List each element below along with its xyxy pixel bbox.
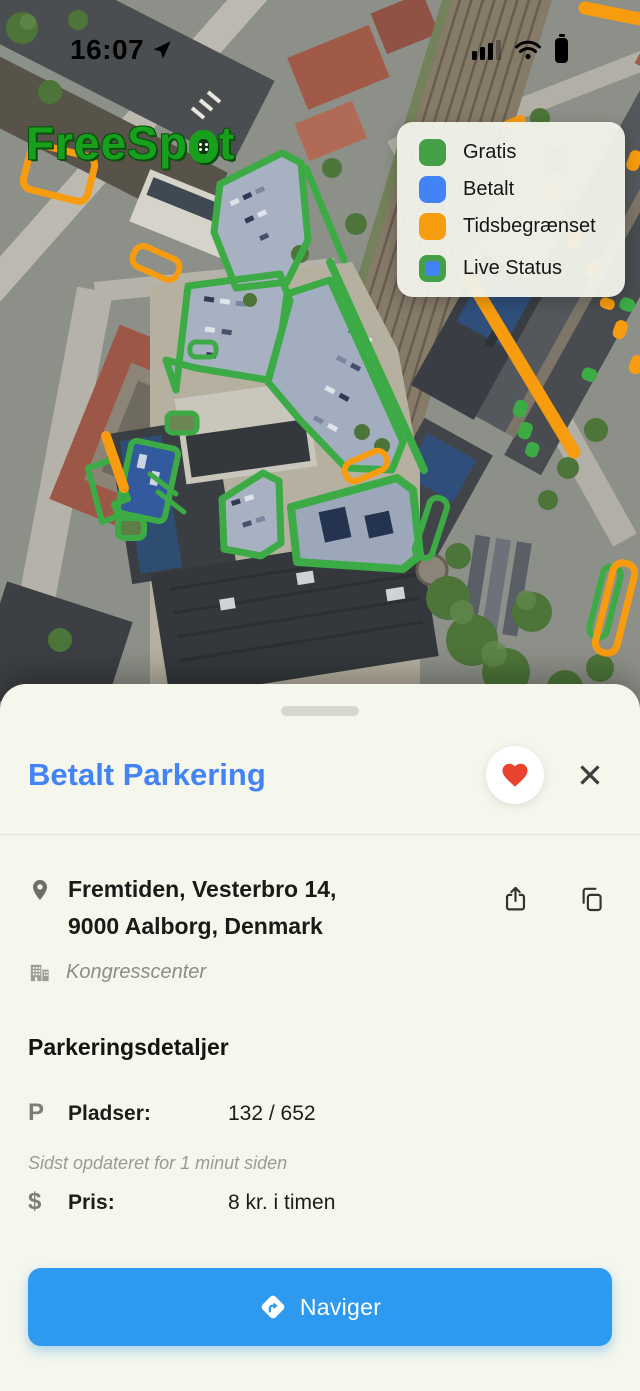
close-icon: ✕ <box>576 757 604 794</box>
price-label: Pris: <box>68 1191 228 1215</box>
heart-icon <box>499 760 531 790</box>
address-section: Fremtiden, Vesterbro 14, 9000 Aalborg, D… <box>0 835 640 984</box>
price-row: $ Pris: 8 kr. i timen <box>28 1188 612 1216</box>
free-swatch-icon <box>419 139 446 166</box>
app-logo: FreeSpt <box>26 116 235 170</box>
logo-text-prefix: FreeSp <box>26 116 188 170</box>
address-line1: Fremtiden, Vesterbro 14, <box>68 871 501 908</box>
navigate-button[interactable]: Naviger <box>28 1268 612 1346</box>
legend-label: Live Status <box>463 257 562 280</box>
sheet-header: Betalt Parkering ✕ <box>0 716 640 804</box>
address-line2: 9000 Aalborg, Denmark <box>68 908 501 945</box>
navigate-label: Naviger <box>300 1294 381 1321</box>
legend-label: Betalt <box>463 178 514 201</box>
app-screen: 16:07 FreeSpt Gratis <box>0 0 640 1391</box>
close-button[interactable]: ✕ <box>570 756 610 795</box>
parking-grass-spot[interactable] <box>167 413 197 433</box>
map-pin-icon <box>28 875 52 905</box>
dollar-icon: $ <box>28 1188 68 1216</box>
bottom-sheet: Betalt Parkering ✕ Fremtiden, Vesterbro … <box>0 684 640 1391</box>
limited-swatch-icon <box>419 213 446 240</box>
logo-car-o-icon <box>189 130 218 163</box>
live-status-swatch-icon <box>419 255 446 282</box>
status-time: 16:07 <box>70 34 144 66</box>
parking-mini-green[interactable] <box>118 518 144 538</box>
status-bar: 16:07 <box>0 30 640 70</box>
map-view[interactable]: 16:07 FreeSpt Gratis <box>0 0 640 712</box>
parking-p-icon: P <box>28 1099 68 1127</box>
location-arrow-icon <box>151 39 173 61</box>
spots-label: Pladser: <box>68 1102 228 1126</box>
venue-name: Kongresscenter <box>66 961 206 984</box>
battery-icon <box>555 38 568 63</box>
copy-button[interactable] <box>577 883 606 915</box>
parking-details-section: Parkeringsdetaljer P Pladser: 132 / 652 … <box>0 1034 640 1216</box>
navigate-diamond-icon <box>259 1293 287 1321</box>
sheet-drag-handle[interactable] <box>281 706 359 716</box>
signal-icon <box>472 40 501 60</box>
share-button[interactable] <box>501 883 530 915</box>
spots-value: 132 / 652 <box>228 1102 316 1126</box>
venue-row: Kongresscenter <box>28 961 614 984</box>
spots-row: P Pladser: 132 / 652 <box>28 1099 612 1127</box>
copy-icon <box>577 883 606 914</box>
legend-item-free: Gratis <box>419 139 613 166</box>
legend-item-limited: Tidsbegrænset <box>419 213 613 240</box>
legend-label: Tidsbegrænset <box>463 215 596 238</box>
sheet-title: Betalt Parkering <box>28 757 486 793</box>
price-value: 8 kr. i timen <box>228 1191 335 1215</box>
map-legend: Gratis Betalt Tidsbegrænset Live Status <box>397 122 625 297</box>
details-heading: Parkeringsdetaljer <box>28 1034 612 1061</box>
paid-swatch-icon <box>419 176 446 203</box>
legend-item-live: Live Status <box>419 255 613 282</box>
satellite-basemap <box>0 0 640 712</box>
address-text: Fremtiden, Vesterbro 14, 9000 Aalborg, D… <box>56 871 501 945</box>
share-icon <box>501 883 530 914</box>
wifi-icon <box>514 39 542 61</box>
favorite-button[interactable] <box>486 746 544 804</box>
last-updated-note: Sidst opdateret for 1 minut siden <box>28 1153 612 1174</box>
legend-label: Gratis <box>463 141 516 164</box>
building-icon <box>28 961 51 984</box>
legend-item-paid: Betalt <box>419 176 613 203</box>
satellite-map[interactable] <box>0 0 640 712</box>
logo-text-suffix: t <box>219 116 235 170</box>
